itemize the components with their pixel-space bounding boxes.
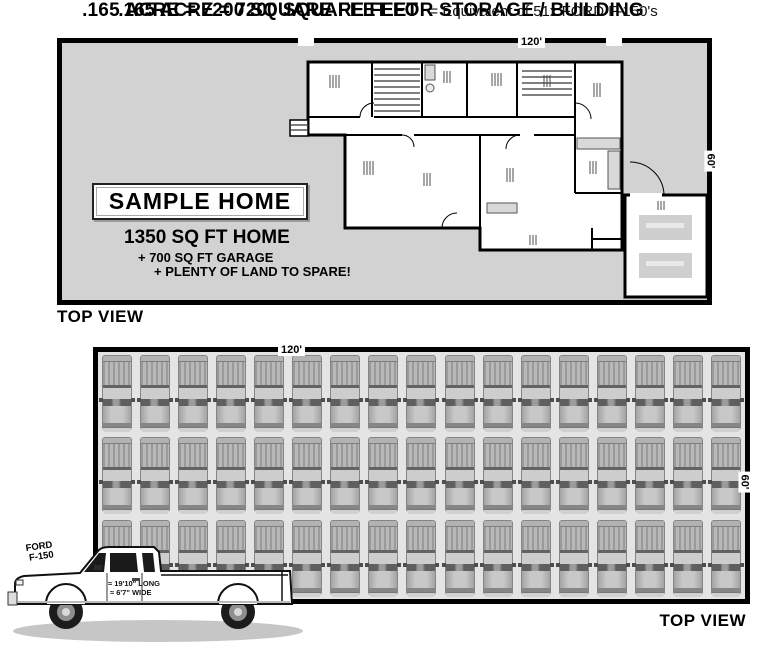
truck-top-view	[559, 520, 589, 596]
truck-roof	[103, 388, 131, 399]
home-sqft-stat: 1350 SQ FT HOME	[124, 227, 290, 249]
truck-bumper	[217, 427, 245, 432]
truck-top-view	[254, 437, 284, 513]
truck-roof	[712, 470, 740, 481]
truck-bumper	[712, 592, 740, 597]
truck-grid-cell	[364, 517, 402, 599]
lot2-width-dimension: 120'	[278, 344, 305, 356]
truck-bumper	[484, 427, 512, 432]
truck-top-view	[521, 355, 551, 431]
truck-bumper	[103, 427, 131, 432]
truck-hood	[369, 406, 397, 423]
truck-bed	[636, 444, 664, 467]
truck-roof	[484, 553, 512, 564]
truck-windshield	[446, 481, 474, 488]
truck-roof	[179, 470, 207, 481]
truck-grid-cell	[479, 517, 517, 599]
truck-grid-cell	[593, 352, 631, 434]
truck-bumper	[712, 509, 740, 514]
truck-bumper	[255, 427, 283, 432]
truck-bumper	[103, 509, 131, 514]
truck-hood	[331, 571, 359, 588]
truck-bed	[598, 527, 626, 550]
truck-bed	[407, 362, 435, 385]
truck-bed	[712, 444, 740, 467]
truck-bumper	[141, 427, 169, 432]
truck-roof	[217, 388, 245, 399]
truck-grid-cell	[517, 352, 555, 434]
ford-f150-side-view: FORD F-150 ≈ 19'10" LONG ≈ 6'7" WIDE	[6, 528, 312, 648]
garage-plan	[625, 162, 707, 297]
truck-windshield	[674, 399, 702, 406]
truck-roof	[217, 470, 245, 481]
truck-grid-cell	[402, 517, 440, 599]
truck-windshield	[255, 481, 283, 488]
truck-windshield	[674, 564, 702, 571]
truck-bed	[712, 527, 740, 550]
truck-hood	[560, 488, 588, 505]
truck-windshield	[293, 481, 321, 488]
truck-bumper	[636, 427, 664, 432]
truck-name-line2: F-150	[28, 549, 54, 563]
truck-grid-cell	[707, 517, 745, 599]
truck-bumper	[560, 592, 588, 597]
truck-windshield	[103, 399, 131, 406]
truck-grid-cell	[326, 352, 364, 434]
truck-top-view	[483, 355, 513, 431]
truck-windshield	[636, 399, 664, 406]
truck-bed	[446, 362, 474, 385]
truck-bed	[484, 362, 512, 385]
truck-hood	[179, 406, 207, 423]
truck-grid-cell	[441, 517, 479, 599]
truck-grid-cell	[98, 352, 136, 434]
truck-roof	[331, 553, 359, 564]
truck-bed	[255, 444, 283, 467]
truck-bumper	[407, 509, 435, 514]
truck-bumper	[484, 592, 512, 597]
truck-bed	[331, 527, 359, 550]
truck-windshield	[712, 564, 740, 571]
truck-bumper	[636, 592, 664, 597]
truck-hood	[369, 571, 397, 588]
truck-top-view	[635, 355, 665, 431]
truck-roof	[293, 388, 321, 399]
truck-name-callout: FORD F-150	[25, 539, 55, 564]
truck-hood	[217, 488, 245, 505]
truck-grid-cell	[555, 434, 593, 516]
lot1-height-dimension: 60'	[704, 151, 716, 172]
truck-bumper	[369, 427, 397, 432]
truck-bumper	[522, 509, 550, 514]
truck-hood	[560, 571, 588, 588]
truck-grid-cell	[364, 434, 402, 516]
truck-bumper	[369, 592, 397, 597]
bottom-title-bold: .165 ACRE = 7200 SQUARE FEET	[118, 0, 418, 21]
truck-bumper	[560, 509, 588, 514]
truck-bed	[255, 362, 283, 385]
truck-bumper	[446, 509, 474, 514]
truck-roof	[407, 553, 435, 564]
truck-windshield	[598, 564, 626, 571]
lot2-height-dimension: 60'	[738, 472, 750, 493]
truck-top-view	[559, 437, 589, 513]
truck-top-view	[330, 355, 360, 431]
truck-roof	[522, 553, 550, 564]
truck-length-text: ≈ 19'10" LONG	[108, 579, 160, 588]
truck-bumper	[446, 592, 474, 597]
truck-bumper	[674, 592, 702, 597]
truck-grid-cell	[707, 352, 745, 434]
truck-roof	[407, 470, 435, 481]
truck-hood	[407, 406, 435, 423]
truck-bumper	[217, 509, 245, 514]
truck-grid-cell	[441, 352, 479, 434]
truck-roof	[446, 553, 474, 564]
truck-roof	[407, 388, 435, 399]
truck-bed	[179, 362, 207, 385]
truck-hood	[407, 488, 435, 505]
truck-hood	[484, 571, 512, 588]
truck-top-view	[597, 437, 627, 513]
truck-hood	[103, 406, 131, 423]
truck-bumper	[331, 509, 359, 514]
lot-comparison-diagram: .165 ACRE = 7200 SQUARE FEET FOR STORAGE…	[0, 0, 776, 650]
truck-bed	[293, 444, 321, 467]
truck-roof	[293, 470, 321, 481]
truck-windshield	[369, 481, 397, 488]
truck-hood	[141, 406, 169, 423]
truck-bumper	[255, 509, 283, 514]
border-tick	[298, 36, 314, 46]
truck-grid-cell	[631, 434, 669, 516]
truck-windshield	[293, 399, 321, 406]
truck-hood	[141, 488, 169, 505]
truck-bumper	[293, 427, 321, 432]
truck-windshield	[331, 564, 359, 571]
truck-bed	[293, 362, 321, 385]
truck-hood	[255, 488, 283, 505]
truck-top-view	[368, 437, 398, 513]
truck-grid-cell	[212, 434, 250, 516]
truck-roof	[255, 388, 283, 399]
truck-bed	[217, 444, 245, 467]
truck-windshield	[522, 564, 550, 571]
truck-hood	[560, 406, 588, 423]
truck-top-view	[292, 355, 322, 431]
truck-top-view	[711, 520, 741, 596]
truck-windshield	[598, 481, 626, 488]
truck-windshield	[484, 564, 512, 571]
truck-top-view	[673, 355, 703, 431]
truck-top-view	[445, 355, 475, 431]
truck-grid-cell	[402, 352, 440, 434]
truck-width-text: ≈ 6'7" WIDE	[110, 588, 152, 597]
truck-bumper	[522, 592, 550, 597]
truck-top-view	[216, 437, 246, 513]
truck-grid-cell	[288, 434, 326, 516]
truck-bed	[636, 527, 664, 550]
truck-bumper	[674, 427, 702, 432]
truck-grid-cell	[326, 434, 364, 516]
truck-bed	[369, 444, 397, 467]
truck-bed	[522, 444, 550, 467]
truck-roof	[560, 470, 588, 481]
truck-hood	[598, 406, 626, 423]
truck-top-view	[445, 437, 475, 513]
truck-bumper	[446, 427, 474, 432]
truck-grid-cell	[136, 434, 174, 516]
truck-top-view	[711, 437, 741, 513]
truck-grid-cell	[288, 352, 326, 434]
truck-grid-cell	[669, 352, 707, 434]
truck-hood	[674, 571, 702, 588]
truck-bumper	[331, 427, 359, 432]
truck-top-view	[597, 355, 627, 431]
truck-grid-cell	[669, 434, 707, 516]
truck-hood	[598, 571, 626, 588]
lot-sample-home: 120' 60' SAMPLE HOME 1350 SQ FT HOME + 7…	[57, 38, 712, 305]
top-view-label-2: TOP VIEW	[630, 611, 746, 631]
truck-windshield	[331, 481, 359, 488]
truck-bed	[369, 362, 397, 385]
truck-top-view	[406, 355, 436, 431]
truck-windshield	[636, 564, 664, 571]
truck-grid-cell	[631, 517, 669, 599]
truck-bed	[407, 444, 435, 467]
truck-grid-cell	[250, 352, 288, 434]
truck-windshield	[255, 399, 283, 406]
truck-bed	[636, 362, 664, 385]
truck-bed	[331, 362, 359, 385]
truck-grid-cell	[517, 517, 555, 599]
truck-bed	[103, 444, 131, 467]
truck-windshield	[217, 399, 245, 406]
lot1-width-dimension: 120'	[518, 36, 545, 48]
truck-bed	[598, 362, 626, 385]
truck-windshield	[484, 481, 512, 488]
truck-windshield	[179, 399, 207, 406]
truck-top-view	[635, 437, 665, 513]
truck-bed	[331, 444, 359, 467]
truck-roof	[522, 388, 550, 399]
truck-bed	[712, 362, 740, 385]
truck-top-view	[178, 437, 208, 513]
truck-bumper	[484, 509, 512, 514]
truck-grid-cell	[593, 517, 631, 599]
truck-bed	[484, 527, 512, 550]
truck-top-view	[521, 520, 551, 596]
truck-top-view	[330, 437, 360, 513]
truck-roof	[369, 388, 397, 399]
truck-bed	[103, 362, 131, 385]
truck-top-view	[368, 520, 398, 596]
truck-top-view	[483, 437, 513, 513]
truck-bed	[560, 362, 588, 385]
truck-roof	[179, 388, 207, 399]
truck-top-view	[140, 355, 170, 431]
truck-top-view	[445, 520, 475, 596]
truck-windshield	[369, 399, 397, 406]
truck-roof	[712, 388, 740, 399]
garage-sqft-stat: + 700 SQ FT GARAGE	[138, 250, 273, 265]
truck-bumper	[522, 427, 550, 432]
truck-grid-cell	[364, 352, 402, 434]
truck-grid-cell	[98, 434, 136, 516]
truck-windshield	[522, 481, 550, 488]
porch-steps	[290, 120, 308, 136]
truck-windshield	[484, 399, 512, 406]
truck-roof	[484, 388, 512, 399]
truck-bed	[522, 362, 550, 385]
truck-hood	[331, 406, 359, 423]
truck-bumper	[369, 509, 397, 514]
truck-roof	[369, 553, 397, 564]
truck-top-view	[102, 437, 132, 513]
truck-grid-cell	[479, 352, 517, 434]
truck-hood	[674, 406, 702, 423]
truck-windshield	[179, 481, 207, 488]
truck-roof	[598, 388, 626, 399]
truck-roof	[674, 553, 702, 564]
truck-windshield	[636, 481, 664, 488]
truck-roof	[522, 470, 550, 481]
truck-hood	[369, 488, 397, 505]
bottom-title-rest: = Equivalent of 51x FORD F-150's	[429, 3, 657, 20]
truck-bumper	[293, 509, 321, 514]
truck-hood	[217, 406, 245, 423]
truck-roof	[636, 553, 664, 564]
truck-hood	[293, 488, 321, 505]
truck-top-view	[406, 520, 436, 596]
truck-top-view	[673, 437, 703, 513]
truck-hood	[446, 571, 474, 588]
truck-hood	[636, 406, 664, 423]
truck-hood	[598, 488, 626, 505]
truck-bumper	[331, 592, 359, 597]
truck-windshield	[674, 481, 702, 488]
truck-top-view	[711, 355, 741, 431]
truck-windshield	[141, 481, 169, 488]
truck-hood	[446, 406, 474, 423]
top-view-label-1: TOP VIEW	[57, 307, 144, 327]
truck-bumper	[141, 509, 169, 514]
truck-bumper	[179, 427, 207, 432]
truck-roof	[446, 388, 474, 399]
truck-hood	[484, 488, 512, 505]
truck-hood	[331, 488, 359, 505]
truck-bed	[560, 444, 588, 467]
truck-top-view	[635, 520, 665, 596]
truck-top-view	[102, 355, 132, 431]
truck-roof	[255, 470, 283, 481]
truck-roof	[369, 470, 397, 481]
truck-hood	[407, 571, 435, 588]
truck-hood	[522, 571, 550, 588]
truck-bed	[446, 444, 474, 467]
truck-bumper	[598, 592, 626, 597]
truck-hood	[446, 488, 474, 505]
truck-hood	[636, 571, 664, 588]
truck-top-view	[483, 520, 513, 596]
house-floor-plan	[290, 62, 622, 250]
truck-bed	[141, 362, 169, 385]
truck-grid-cell	[326, 517, 364, 599]
truck-bed	[407, 527, 435, 550]
truck-windshield	[407, 399, 435, 406]
truck-roof	[674, 470, 702, 481]
truck-roof	[446, 470, 474, 481]
truck-bumper	[598, 509, 626, 514]
truck-bed	[522, 527, 550, 550]
truck-windshield	[446, 399, 474, 406]
truck-bed	[674, 444, 702, 467]
truck-hood	[484, 406, 512, 423]
truck-grid-cell	[517, 434, 555, 516]
truck-roof	[484, 470, 512, 481]
truck-hood	[103, 488, 131, 505]
truck-grid-cell	[479, 434, 517, 516]
truck-bed	[369, 527, 397, 550]
truck-top-view	[597, 520, 627, 596]
truck-roof	[331, 470, 359, 481]
truck-windshield	[560, 399, 588, 406]
truck-roof	[598, 470, 626, 481]
truck-roof	[636, 388, 664, 399]
land-spare-stat: + PLENTY OF LAND TO SPARE!	[154, 264, 351, 279]
truck-bed	[141, 444, 169, 467]
truck-bed	[560, 527, 588, 550]
truck-grid-cell	[250, 434, 288, 516]
truck-windshield	[103, 481, 131, 488]
truck-top-view	[521, 437, 551, 513]
truck-roof	[331, 388, 359, 399]
truck-grid-cell	[174, 434, 212, 516]
truck-top-view	[673, 520, 703, 596]
truck-bumper	[560, 427, 588, 432]
truck-bed	[674, 362, 702, 385]
truck-top-view	[292, 437, 322, 513]
truck-bumper	[674, 509, 702, 514]
truck-hood	[712, 488, 740, 505]
truck-windshield	[560, 564, 588, 571]
truck-roof	[103, 470, 131, 481]
truck-hood	[293, 406, 321, 423]
truck-windshield	[217, 481, 245, 488]
truck-bed	[484, 444, 512, 467]
truck-bumper	[636, 509, 664, 514]
truck-bumper	[407, 427, 435, 432]
truck-top-view	[330, 520, 360, 596]
truck-grid-cell	[174, 352, 212, 434]
truck-hood	[255, 406, 283, 423]
truck-bed	[674, 527, 702, 550]
truck-windshield	[560, 481, 588, 488]
truck-windshield	[141, 399, 169, 406]
truck-top-view	[254, 355, 284, 431]
border-tick	[606, 36, 622, 46]
truck-roof	[712, 553, 740, 564]
truck-windshield	[331, 399, 359, 406]
truck-hood	[712, 571, 740, 588]
truck-grid-cell	[593, 434, 631, 516]
truck-grid-cell	[212, 352, 250, 434]
truck-windshield	[446, 564, 474, 571]
truck-roof	[674, 388, 702, 399]
truck-grid-cell	[402, 434, 440, 516]
truck-windshield	[712, 481, 740, 488]
truck-windshield	[598, 399, 626, 406]
